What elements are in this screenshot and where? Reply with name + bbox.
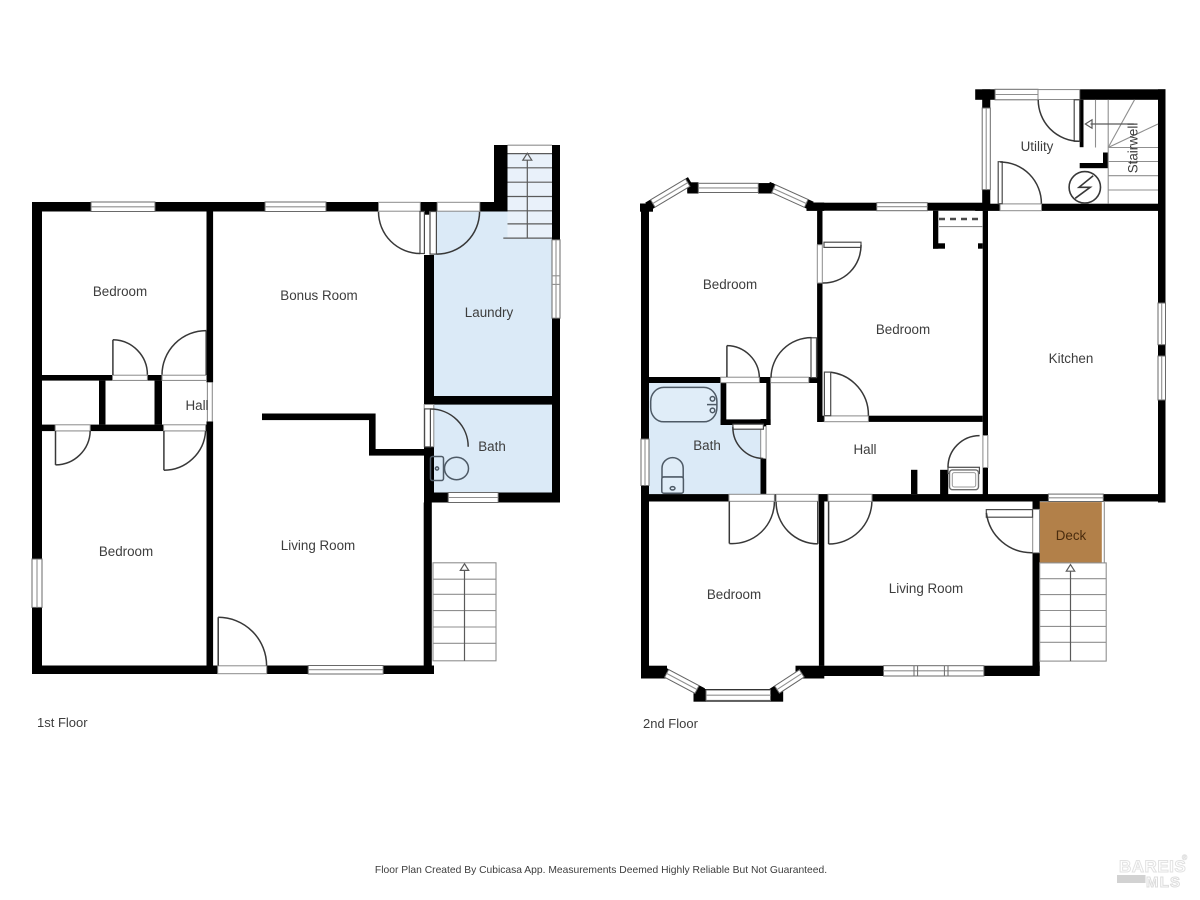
svg-text:Kitchen: Kitchen: [1049, 351, 1094, 366]
svg-text:Bedroom: Bedroom: [876, 322, 930, 337]
svg-text:®: ®: [1182, 854, 1188, 862]
svg-text:Laundry: Laundry: [465, 305, 514, 320]
svg-text:Living Room: Living Room: [889, 581, 963, 596]
svg-text:1st Floor: 1st Floor: [37, 715, 88, 730]
svg-text:Bath: Bath: [478, 439, 506, 454]
svg-text:Bedroom: Bedroom: [703, 277, 757, 292]
svg-text:Hall: Hall: [185, 398, 208, 413]
svg-text:Bedroom: Bedroom: [707, 587, 761, 602]
svg-text:Utility: Utility: [1021, 139, 1054, 154]
svg-text:Bonus Room: Bonus Room: [280, 288, 357, 303]
svg-text:Bath: Bath: [693, 438, 721, 453]
svg-text:Bedroom: Bedroom: [93, 284, 147, 299]
svg-text:Living Room: Living Room: [281, 538, 355, 553]
svg-text:Floor Plan Created By Cubicasa: Floor Plan Created By Cubicasa App. Meas…: [375, 865, 827, 876]
svg-text:Hall: Hall: [853, 442, 876, 457]
svg-text:2nd Floor: 2nd Floor: [643, 716, 699, 731]
svg-text:Stairwell: Stairwell: [1126, 123, 1141, 174]
svg-text:Deck: Deck: [1056, 528, 1087, 543]
svg-text:Bedroom: Bedroom: [99, 544, 153, 559]
svg-text:MLS: MLS: [1146, 874, 1181, 891]
